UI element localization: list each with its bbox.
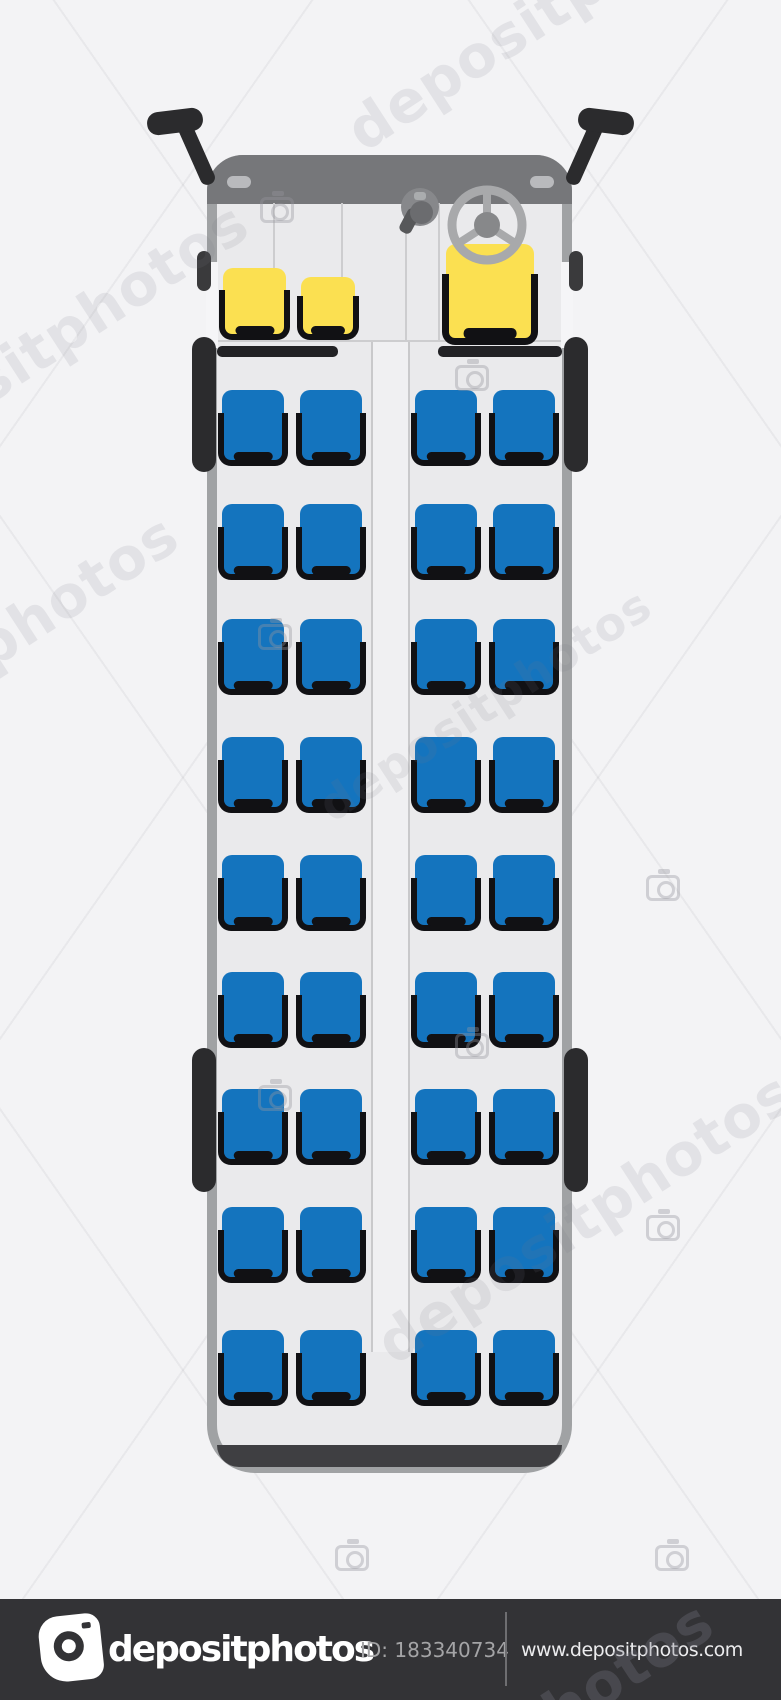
attendant-seat bbox=[297, 277, 359, 340]
watermark-footer: depositphotos ID: 183340734 www.depositp… bbox=[0, 1599, 781, 1700]
seat-base bbox=[505, 799, 544, 808]
gear-shift-knob-icon bbox=[401, 188, 439, 226]
seat-base bbox=[311, 326, 345, 335]
seat-base bbox=[234, 917, 273, 926]
seat-base bbox=[505, 1151, 544, 1160]
footer-brand: depositphotos bbox=[108, 1599, 373, 1700]
seat-base bbox=[234, 1034, 273, 1043]
seat-base bbox=[234, 1392, 273, 1401]
seat-base bbox=[505, 1269, 544, 1278]
seat-base bbox=[234, 1151, 273, 1160]
footer-divider bbox=[505, 1612, 507, 1686]
depositphotos-logo-icon bbox=[37, 1612, 106, 1684]
seat-base bbox=[505, 1034, 544, 1043]
seat-base bbox=[234, 452, 273, 461]
seat-base bbox=[505, 1392, 544, 1401]
passenger-seat bbox=[489, 1207, 559, 1283]
passenger-seat bbox=[218, 504, 288, 580]
passenger-seat bbox=[411, 504, 481, 580]
passenger-seat bbox=[218, 972, 288, 1048]
seat-base bbox=[235, 326, 274, 335]
seat-base bbox=[234, 1269, 273, 1278]
seat-base bbox=[312, 1151, 351, 1160]
passenger-seat bbox=[411, 1207, 481, 1283]
passenger-seat bbox=[296, 390, 366, 466]
seat-base bbox=[312, 681, 351, 690]
seat-base bbox=[427, 566, 466, 575]
passenger-seat bbox=[489, 1089, 559, 1165]
seats-layer bbox=[217, 165, 562, 1463]
passenger-seat bbox=[411, 855, 481, 931]
seat-base bbox=[464, 328, 517, 339]
bus-body bbox=[207, 155, 572, 1473]
passenger-seat bbox=[296, 855, 366, 931]
seat-base bbox=[427, 1269, 466, 1278]
rear-right-wheel bbox=[564, 1048, 588, 1192]
gear-shift-cap bbox=[414, 192, 426, 200]
passenger-seat bbox=[218, 1207, 288, 1283]
seat-base bbox=[505, 566, 544, 575]
passenger-seat bbox=[218, 619, 288, 695]
passenger-seat bbox=[411, 1089, 481, 1165]
camera-viewfinder bbox=[81, 1622, 91, 1629]
camera-lens bbox=[52, 1630, 85, 1663]
passenger-seat bbox=[411, 972, 481, 1048]
seat-base bbox=[312, 452, 351, 461]
seat-base bbox=[312, 1269, 351, 1278]
seat-base bbox=[312, 799, 351, 808]
front-left-wheel bbox=[192, 337, 216, 472]
seat-base bbox=[505, 917, 544, 926]
bus-illustration bbox=[0, 0, 781, 1700]
passenger-seat bbox=[218, 390, 288, 466]
seat-base bbox=[505, 452, 544, 461]
left-marker-tab bbox=[197, 251, 211, 291]
seat-base bbox=[427, 917, 466, 926]
seat-base bbox=[427, 1392, 466, 1401]
seat-base bbox=[312, 1034, 351, 1043]
passenger-seat bbox=[489, 855, 559, 931]
footer-image-id: ID: 183340734 bbox=[360, 1599, 509, 1700]
passenger-seat bbox=[411, 737, 481, 813]
footer-url: www.depositphotos.com bbox=[521, 1599, 743, 1700]
passenger-seat bbox=[489, 619, 559, 695]
passenger-seat bbox=[411, 1330, 481, 1406]
passenger-seat bbox=[218, 1330, 288, 1406]
passenger-seat bbox=[296, 619, 366, 695]
seat-base bbox=[234, 799, 273, 808]
seat-base bbox=[312, 1392, 351, 1401]
passenger-seat bbox=[218, 1089, 288, 1165]
seat-base bbox=[427, 799, 466, 808]
right-marker-tab bbox=[569, 251, 583, 291]
passenger-seat bbox=[489, 1330, 559, 1406]
gear-shift-shade bbox=[410, 201, 433, 224]
seat-base bbox=[427, 1034, 466, 1043]
seat-base bbox=[312, 917, 351, 926]
seat-base bbox=[427, 681, 466, 690]
passenger-seat bbox=[296, 1330, 366, 1406]
passenger-seat bbox=[411, 390, 481, 466]
passenger-seat bbox=[218, 855, 288, 931]
passenger-seat bbox=[296, 737, 366, 813]
seat-base bbox=[427, 1151, 466, 1160]
seat-base bbox=[234, 566, 273, 575]
steering-wheel-icon bbox=[445, 183, 529, 267]
attendant-seat bbox=[219, 268, 290, 340]
passenger-seat bbox=[489, 972, 559, 1048]
passenger-seat bbox=[411, 619, 481, 695]
passenger-seat bbox=[489, 737, 559, 813]
rear-left-wheel bbox=[192, 1048, 216, 1192]
passenger-seat bbox=[296, 504, 366, 580]
seat-base bbox=[505, 681, 544, 690]
seat-base bbox=[312, 566, 351, 575]
passenger-seat bbox=[296, 1207, 366, 1283]
front-right-wheel bbox=[564, 337, 588, 472]
passenger-seat bbox=[296, 972, 366, 1048]
passenger-seat bbox=[296, 1089, 366, 1165]
passenger-seat bbox=[489, 504, 559, 580]
stock-image-canvas: depositphotosdepositphotosdepositphotosd… bbox=[0, 0, 781, 1700]
passenger-seat bbox=[489, 390, 559, 466]
passenger-seat bbox=[218, 737, 288, 813]
seat-base bbox=[234, 681, 273, 690]
seat-base bbox=[427, 452, 466, 461]
